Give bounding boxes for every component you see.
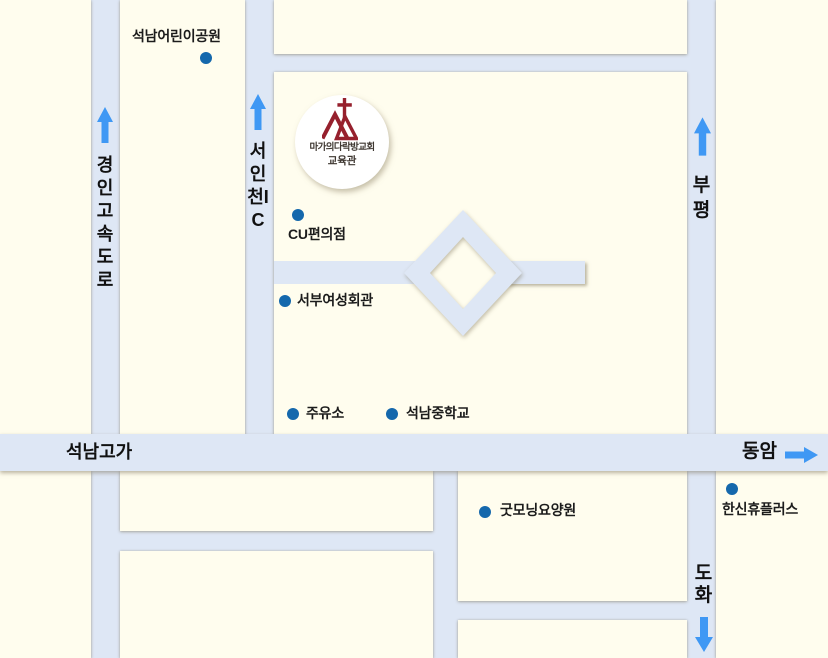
poi-dot-hanshin-hue-plus — [726, 483, 738, 495]
city-block — [716, 471, 828, 658]
city-block — [274, 0, 687, 54]
poi-dot-west-womens-hall — [279, 295, 291, 307]
poi-label-cu-store: CU편의점 — [288, 226, 346, 242]
poi-label-gas-station: 주유소 — [306, 405, 344, 421]
interchange-diamond — [395, 200, 535, 346]
poi-dot-gas-station — [287, 408, 299, 420]
poi-label-seoknam-childrens-park: 석남어린이공원 — [132, 28, 221, 44]
city-block — [458, 620, 687, 658]
city-block — [120, 0, 245, 435]
road-label-seoknam-overpass: 석남고가 — [66, 442, 132, 463]
bupyeong-up-arrow — [694, 117, 711, 156]
poi-label-seoknam-middle-school: 석남중학교 — [406, 405, 469, 421]
seo-incheon-up-arrow — [250, 94, 266, 130]
poi-dot-good-morning-nursing-home — [479, 506, 491, 518]
poi-dot-seoknam-middle-school — [386, 408, 398, 420]
city-block — [458, 471, 687, 601]
church-annex-label: 교육관 — [295, 155, 389, 168]
dohwa-down-arrow — [695, 617, 713, 652]
poi-label-hanshin-hue-plus: 한신휴플러스 — [722, 501, 798, 517]
church-landmark-badge: 마가의다락방교회 교육관 — [295, 95, 389, 189]
city-block — [120, 471, 433, 531]
poi-label-good-morning-nursing-home: 굿모닝요양원 — [500, 502, 576, 518]
city-block — [0, 471, 91, 658]
poi-dot-cu-store — [292, 209, 304, 221]
poi-dot-seoknam-childrens-park — [200, 52, 212, 64]
poi-label-west-womens-hall: 서부여성회관 — [297, 292, 373, 308]
city-block — [0, 0, 91, 435]
city-block — [716, 0, 828, 435]
city-block — [120, 551, 433, 658]
road-label-dongam: 동암 — [742, 441, 777, 462]
cross-mountain-emblem-icon — [322, 97, 358, 146]
gyeongin-up-arrow — [97, 107, 113, 143]
road-label-dohwa: 도화 — [692, 563, 715, 607]
map-canvas: 경인고속도로 서인천IC 부평 도화 석남고가 동암 석남어린이공원 CU편의점… — [0, 0, 828, 658]
road-label-gyeongin-expressway: 경인고속도로 — [94, 154, 116, 292]
dongam-right-arrow — [785, 447, 818, 463]
road-label-seo-incheon-ic: 서인천IC — [247, 140, 269, 232]
road-label-bupyeong: 부평 — [690, 173, 713, 223]
church-name: 마가의다락방교회 — [295, 141, 389, 154]
